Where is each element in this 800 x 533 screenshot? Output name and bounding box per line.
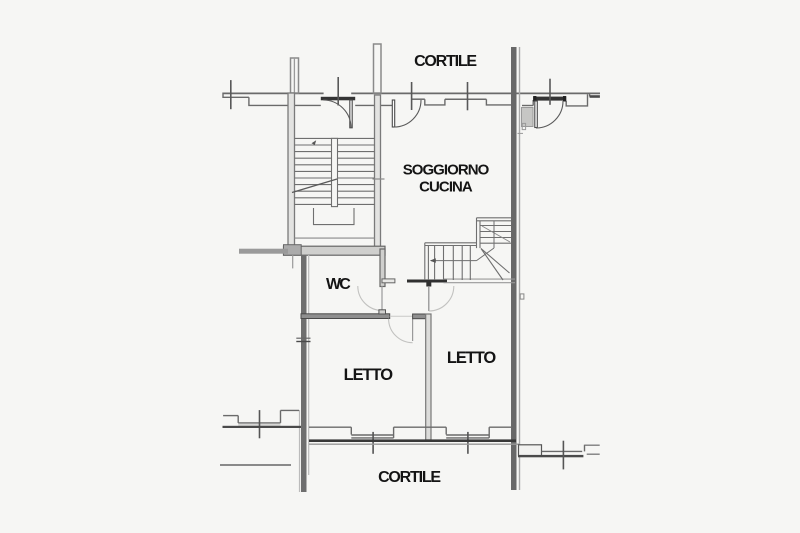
svg-text:CUCINA: CUCINA (419, 179, 473, 196)
svg-text:LETTO: LETTO (447, 349, 497, 367)
svg-text:CORTILE: CORTILE (378, 469, 441, 486)
svg-text:WC: WC (326, 276, 351, 293)
svg-text:CORTILE: CORTILE (414, 53, 477, 70)
svg-text:SOGGIORNO: SOGGIORNO (403, 162, 490, 179)
svg-text:LETTO: LETTO (344, 366, 394, 384)
